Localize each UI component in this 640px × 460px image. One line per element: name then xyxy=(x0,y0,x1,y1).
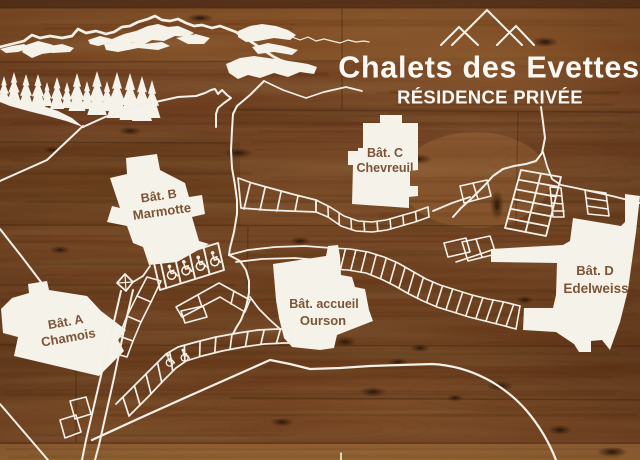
svg-text:Ourson: Ourson xyxy=(300,313,346,328)
svg-text:Chalets des Evettes: Chalets des Evettes xyxy=(338,51,640,85)
svg-text:Bât. D: Bât. D xyxy=(576,263,614,278)
svg-text:Bât. C: Bât. C xyxy=(367,146,403,160)
svg-text:Edelweiss: Edelweiss xyxy=(563,281,628,296)
svg-text:Bât. accueil: Bât. accueil xyxy=(289,297,358,311)
svg-text:RÉSIDENCE PRIVÉE: RÉSIDENCE PRIVÉE xyxy=(397,87,583,108)
svg-text:Chevreuil: Chevreuil xyxy=(357,161,414,175)
